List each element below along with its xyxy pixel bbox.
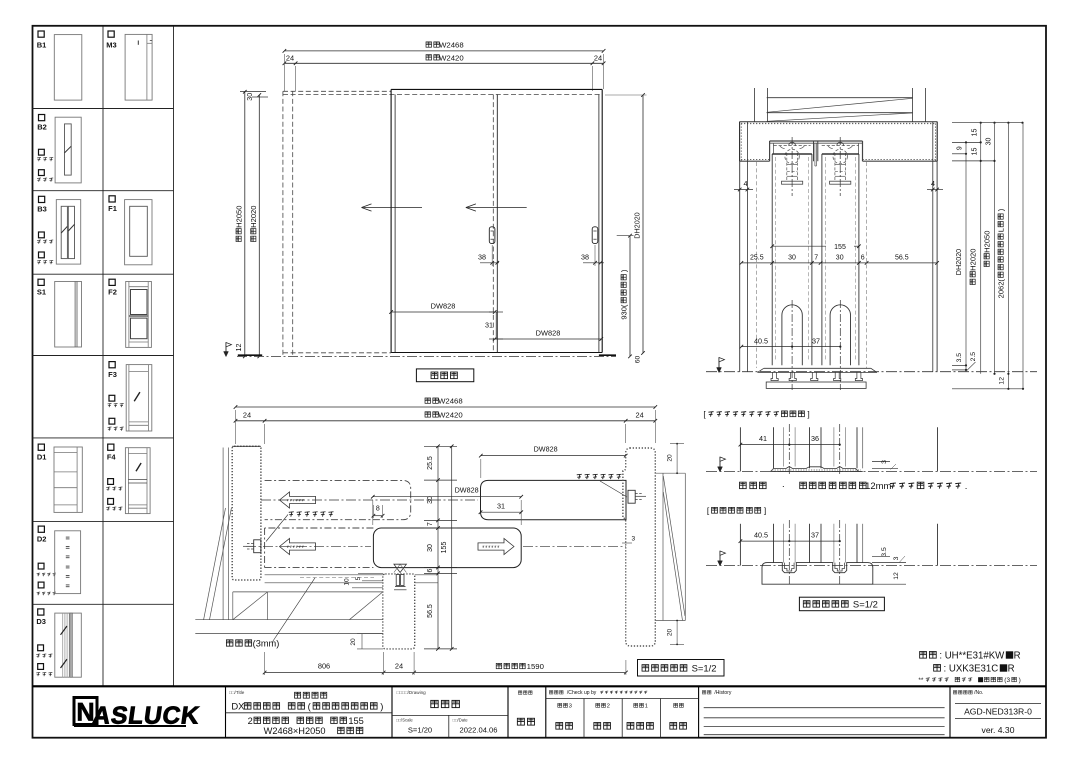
svg-text:D3: D3: [36, 617, 46, 626]
svg-text:15: 15: [972, 129, 979, 137]
svg-text:AGD-NED313R-0: AGD-NED313R-0: [964, 707, 1032, 717]
svg-text:30: 30: [836, 255, 844, 262]
svg-text:DX: DX: [231, 702, 245, 713]
svg-text:H2020: H2020: [969, 249, 978, 271]
svg-text:7: 7: [814, 255, 818, 262]
svg-text:12: 12: [234, 344, 243, 352]
svg-text:24: 24: [635, 410, 643, 419]
svg-text:B3: B3: [37, 205, 47, 214]
svg-text:36: 36: [811, 434, 819, 443]
svg-text:4: 4: [931, 179, 935, 188]
svg-text:806: 806: [318, 662, 330, 671]
svg-text:20: 20: [667, 629, 674, 637]
svg-text:□□/Scale: □□/Scale: [396, 718, 413, 723]
svg-text:S=1/2: S=1/2: [853, 600, 878, 611]
svg-text:3: 3: [632, 536, 636, 543]
svg-text:DH2020: DH2020: [954, 249, 963, 275]
svg-text:15: 15: [972, 148, 979, 156]
svg-text:5: 5: [355, 576, 362, 580]
svg-text:30: 30: [427, 544, 434, 552]
svg-text:30: 30: [788, 255, 796, 262]
svg-text:F4: F4: [107, 453, 117, 462]
svg-text:40.5: 40.5: [754, 531, 768, 540]
svg-text:56.5: 56.5: [427, 604, 434, 618]
svg-text:/History: /History: [714, 690, 732, 696]
svg-text:DW828: DW828: [534, 445, 558, 454]
svg-text:2.5: 2.5: [970, 352, 977, 362]
svg-text:31: 31: [485, 321, 493, 330]
svg-text:20: 20: [350, 638, 357, 646]
svg-text:M3: M3: [106, 41, 116, 50]
svg-text:3: 3: [893, 556, 900, 560]
svg-text:31: 31: [497, 501, 505, 510]
svg-text:2: 2: [248, 716, 253, 726]
svg-text:H2020: H2020: [249, 206, 258, 228]
svg-text:F3: F3: [108, 370, 117, 379]
svg-text:6: 6: [861, 255, 865, 262]
svg-text:12mm: 12mm: [865, 481, 891, 492]
svg-text:30: 30: [245, 93, 254, 101]
svg-text:H2050: H2050: [983, 231, 992, 253]
svg-text:38: 38: [581, 253, 589, 262]
svg-text:: UXK3E31C: : UXK3E31C: [944, 664, 999, 675]
svg-text:S1: S1: [37, 288, 46, 297]
svg-text:B1: B1: [37, 41, 47, 50]
svg-text:D2: D2: [37, 535, 47, 544]
svg-text:**: **: [918, 677, 924, 684]
svg-text:56.5: 56.5: [895, 255, 909, 262]
svg-text:W2468: W2468: [439, 41, 464, 50]
svg-text:155: 155: [834, 244, 846, 251]
svg-text:R: R: [1014, 651, 1021, 662]
svg-text:3.5: 3.5: [956, 353, 963, 363]
svg-text:1: 1: [645, 704, 648, 710]
svg-text:12: 12: [893, 572, 900, 580]
svg-text:24: 24: [286, 53, 294, 62]
svg-text:): ): [380, 702, 383, 713]
svg-text:6: 6: [427, 568, 434, 572]
svg-text:24: 24: [594, 53, 602, 62]
svg-text:9: 9: [957, 146, 964, 150]
svg-text:L: L: [997, 228, 1006, 232]
svg-text:DW828: DW828: [455, 486, 479, 495]
svg-text:]: ]: [807, 409, 809, 419]
svg-text:: UH**E31#KW: : UH**E31#KW: [939, 651, 1005, 662]
svg-text:□□/Date: □□/Date: [453, 718, 469, 723]
svg-text:30: 30: [427, 496, 434, 504]
svg-text:10: 10: [344, 578, 351, 586]
svg-text:W2420: W2420: [438, 410, 463, 419]
svg-text:□□□□/Drawing: □□□□/Drawing: [397, 690, 427, 695]
svg-text:37: 37: [811, 531, 819, 540]
svg-text:ver. 4.30: ver. 4.30: [982, 725, 1015, 735]
svg-text:3.5: 3.5: [881, 547, 888, 557]
svg-text:3: 3: [569, 704, 572, 710]
svg-text:F1: F1: [108, 204, 117, 213]
svg-text:(3mm): (3mm): [253, 639, 280, 649]
svg-text:/No.: /No.: [974, 690, 983, 696]
svg-text:30: 30: [986, 138, 993, 146]
svg-text:60: 60: [634, 356, 641, 364]
svg-text:930(: 930(: [620, 304, 629, 320]
svg-text:2022.04.06: 2022.04.06: [459, 726, 497, 735]
svg-text:24: 24: [395, 662, 403, 671]
svg-text:DW828: DW828: [431, 302, 456, 311]
svg-text:]: ]: [764, 506, 766, 516]
svg-text:3: 3: [881, 460, 888, 464]
svg-text:38: 38: [478, 253, 486, 262]
svg-text:4: 4: [744, 179, 748, 188]
svg-text:37: 37: [812, 336, 820, 345]
svg-text:8: 8: [376, 506, 380, 513]
svg-text:H2050: H2050: [235, 206, 244, 228]
svg-text:24: 24: [243, 410, 251, 419]
svg-text:20: 20: [667, 454, 674, 462]
svg-text:25.5: 25.5: [427, 456, 434, 470]
svg-text:S=1/2: S=1/2: [692, 664, 717, 675]
svg-text:.: .: [965, 481, 968, 492]
svg-text:W2420: W2420: [439, 53, 464, 62]
svg-text:155: 155: [441, 542, 448, 554]
svg-text:W2468×H2050: W2468×H2050: [264, 726, 326, 736]
svg-text:(3: (3: [1004, 677, 1010, 684]
svg-text:DW828: DW828: [536, 329, 561, 338]
svg-text:DH2020: DH2020: [632, 212, 641, 238]
svg-text:W2468: W2468: [438, 397, 463, 406]
svg-text:2062(: 2062(: [997, 279, 1006, 299]
svg-text:F2: F2: [108, 288, 117, 297]
svg-text:12: 12: [998, 377, 1005, 385]
svg-text:·: ·: [782, 481, 785, 492]
svg-text:25.5: 25.5: [750, 255, 764, 262]
svg-text:R: R: [1008, 664, 1015, 675]
svg-text:40.5: 40.5: [754, 336, 768, 345]
svg-text:B2: B2: [37, 123, 47, 132]
svg-text:□□/Title: □□/Title: [229, 690, 245, 695]
svg-text:41: 41: [759, 434, 767, 443]
svg-text:/Check up by: /Check up by: [567, 690, 597, 696]
svg-text:7: 7: [427, 522, 434, 526]
svg-text:S=1/20: S=1/20: [408, 726, 432, 735]
svg-text:155: 155: [348, 716, 363, 726]
svg-text:2: 2: [607, 704, 610, 710]
svg-text:1590: 1590: [527, 662, 545, 671]
svg-text:): ): [1019, 677, 1021, 684]
svg-text:D1: D1: [37, 453, 47, 462]
